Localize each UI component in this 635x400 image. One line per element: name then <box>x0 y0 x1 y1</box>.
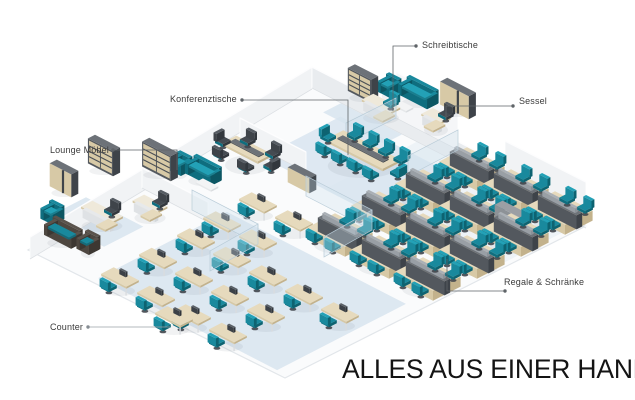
annotation-label-regale-schraenke: Regale & Schränke <box>504 277 584 287</box>
office-floorplan-illustration: Schreibtische Konferenztische Sessel Lou… <box>0 0 635 400</box>
isometric-office-scene <box>0 0 635 400</box>
annotation-label-sessel: Sessel <box>519 96 547 106</box>
tagline-text: ALLES AUS EINER HAND! <box>342 354 635 385</box>
annotation-label-schreibtische: Schreibtische <box>422 40 478 50</box>
annotation-label-lounge-moebel: Lounge Möbel <box>50 145 109 155</box>
annotation-label-konferenztische: Konferenztische <box>170 94 237 104</box>
annotation-label-counter: Counter <box>50 322 83 332</box>
